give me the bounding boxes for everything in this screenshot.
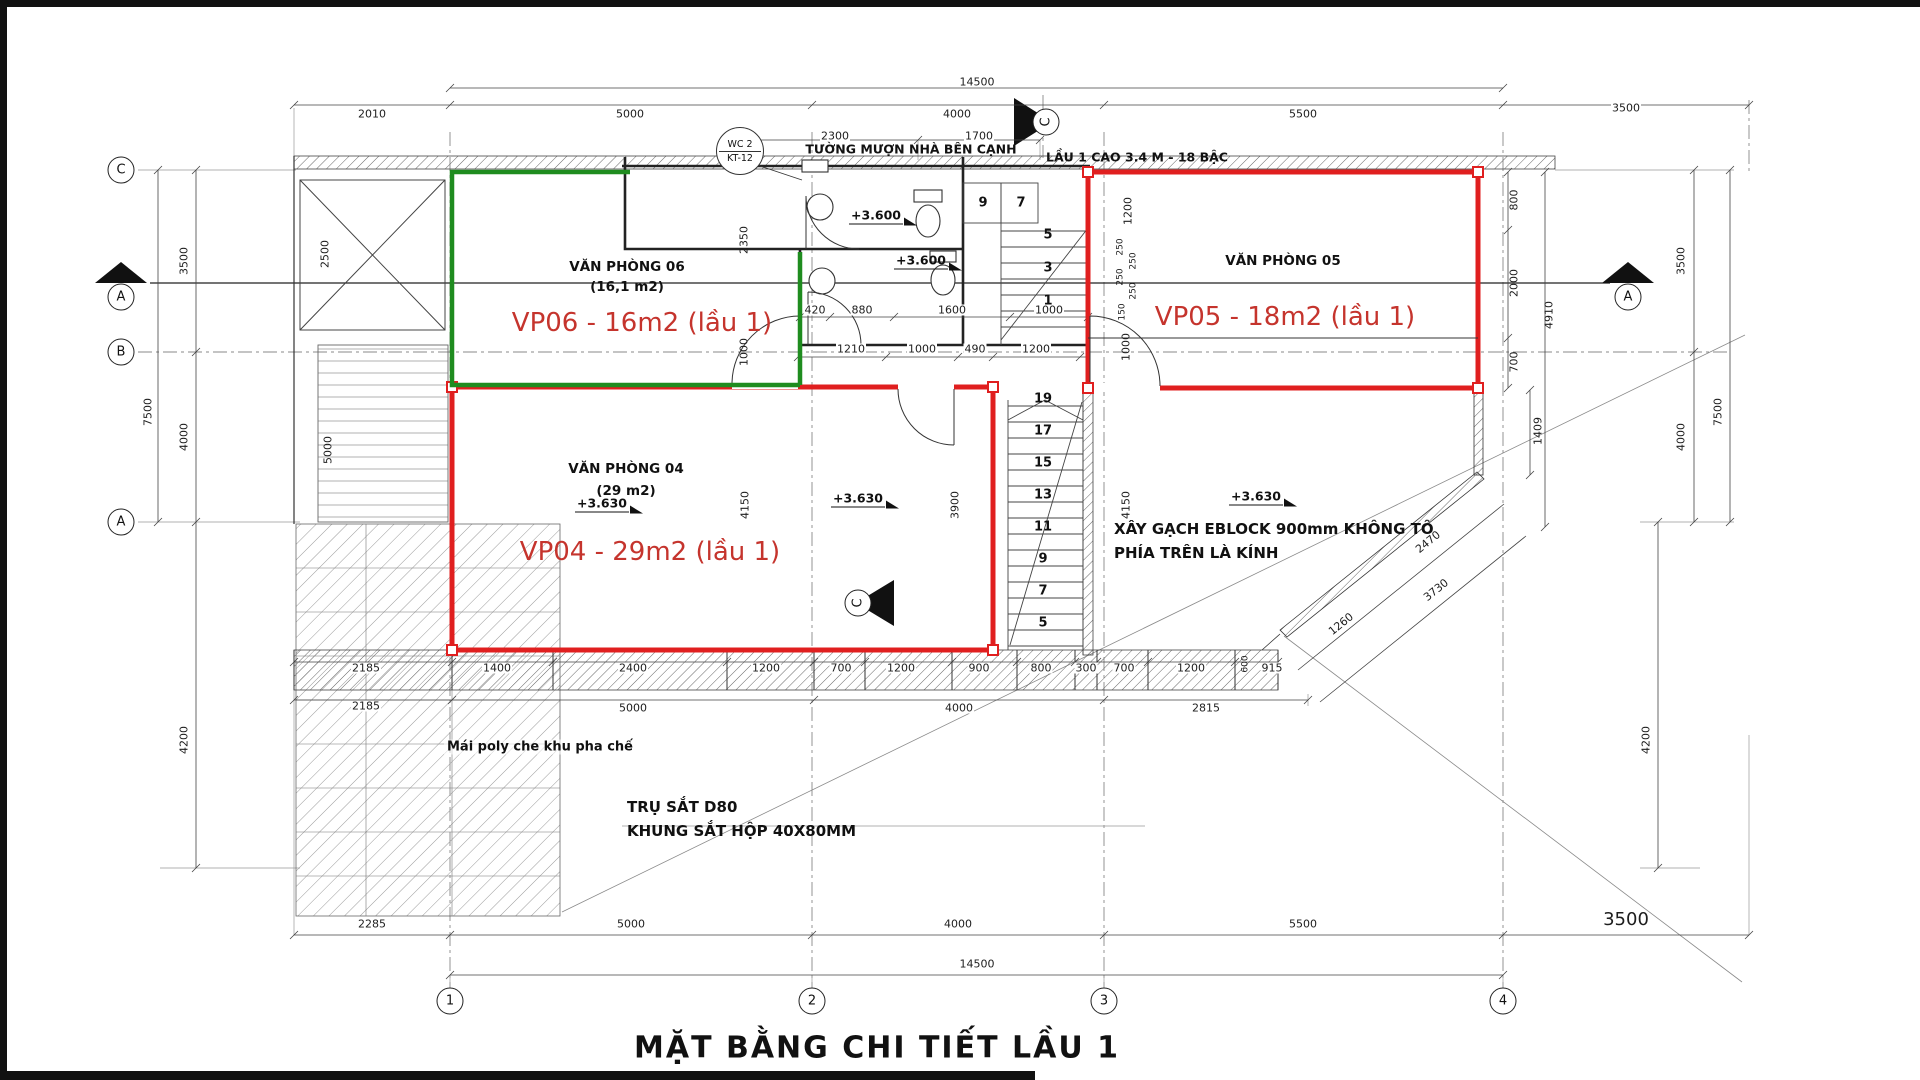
dim-label: 1600 (937, 305, 967, 316)
dim-label: 2300 (820, 131, 850, 142)
dim-label: 250 (1130, 281, 1139, 300)
dim-label: 5000 (616, 919, 646, 930)
note-poly-roof: Mái poly che khu pha chế (444, 740, 636, 755)
stair-number: 7 (1038, 584, 1047, 599)
dim-label: 4000 (1676, 422, 1687, 452)
callout-line1: WC 2 (727, 139, 752, 150)
dim-label: 4000 (179, 422, 190, 452)
dim-label: 2285 (357, 919, 387, 930)
note-eblock-1: XÂY GẠCH EBLOCK 900mm KHÔNG TÔ (1114, 520, 1434, 538)
dim-label: 3730 (1421, 576, 1451, 603)
dim-label: 1000 (1121, 332, 1132, 362)
stair-number: 7 (1016, 196, 1025, 211)
dim-label: 7500 (143, 397, 154, 427)
level-marker: +3.600 (849, 208, 903, 225)
vp06-area: (16,1 m2) (590, 279, 664, 295)
section-flag-bubble: C (845, 590, 872, 617)
dim-label: 5000 (618, 703, 648, 714)
dim-label: 3500 (1676, 246, 1687, 276)
dim-label: 2185 (351, 701, 381, 712)
dim-label: 3500 (1611, 103, 1641, 114)
dim-label: 7500 (1713, 397, 1724, 427)
dim-label: 4000 (944, 703, 974, 714)
dim-label: 4200 (1641, 725, 1652, 755)
dim-label: 1200 (1123, 196, 1134, 226)
dim-label: 1400 (482, 663, 512, 674)
dim-label: 2400 (618, 663, 648, 674)
dim-label: 2500 (320, 239, 331, 269)
vp06-name: VĂN PHÒNG 06 (569, 259, 684, 275)
stair-number: 19 (1034, 392, 1052, 407)
dim-label: 800 (1030, 663, 1053, 674)
grid-bubble-row: B (108, 339, 135, 366)
drawing-title: MẶT BẰNG CHI TIẾT LẦU 1 (634, 1031, 1120, 1066)
grid-bubble-col: 3 (1091, 988, 1118, 1015)
grid-bubble-col: 1 (437, 988, 464, 1015)
level-marker: +3.600 (894, 253, 948, 270)
dim-label: 420 (804, 305, 827, 316)
stair-number: 1 (1043, 294, 1052, 309)
note-floor-height: LẦU 1 CAO 3.4 M - 18 BẬC (1046, 150, 1228, 165)
stair-number: 5 (1038, 616, 1047, 631)
callout-divider (719, 151, 760, 152)
section-flag-bubble: C (1033, 109, 1060, 136)
dim-label: 4200 (179, 725, 190, 755)
floor-plan-sheet: MẶT BẰNG CHI TIẾT LẦU 1 VĂN PHÒNG 06 (16… (0, 0, 1920, 1080)
dim-label: 900 (968, 663, 991, 674)
section-bubble: A (108, 284, 135, 311)
dim-label: 5500 (1288, 109, 1318, 120)
dim-label: 4000 (943, 919, 973, 930)
dim-label: 1000 (907, 344, 937, 355)
note-eblock-2: PHÍA TRÊN LÀ KÍNH (1114, 544, 1278, 562)
dim-label: 700 (1509, 351, 1520, 374)
dim-label: 250 (1117, 237, 1126, 256)
stair-number: 5 (1043, 228, 1052, 243)
dim-label: 5000 (323, 435, 334, 465)
section-bubble: A (1615, 284, 1642, 311)
dim-label: 4910 (1544, 300, 1555, 330)
stair-number: 15 (1034, 456, 1052, 471)
stair-number: 9 (978, 196, 987, 211)
dim-label: 4000 (942, 109, 972, 120)
grid-bubble-row: C (108, 157, 135, 184)
dim-label: 5000 (615, 109, 645, 120)
stair-number: 11 (1034, 520, 1052, 535)
dim-label: 2000 (1509, 268, 1520, 298)
dim-label: 1409 (1533, 416, 1544, 446)
dim-label: 3900 (950, 490, 961, 520)
note-steel-frame: KHUNG SẮT HỘP 40X80MM (627, 822, 856, 840)
level-marker: +3.630 (575, 496, 629, 513)
vp06-tag: VP06 - 16m2 (lầu 1) (512, 308, 772, 338)
dim-label: 4150 (740, 490, 751, 520)
dim-label: 700 (1113, 663, 1136, 674)
dim-label: 1200 (751, 663, 781, 674)
vp04-tag: VP04 - 29m2 (lầu 1) (520, 537, 780, 567)
dim-label: 1700 (964, 131, 994, 142)
dim-label: 3500 (179, 246, 190, 276)
dim-label: 1260 (1326, 610, 1356, 637)
dim-label: 1200 (1176, 663, 1206, 674)
dim-label: 14500 (959, 77, 996, 88)
wc-detail-callout: WC 2 KT-12 (716, 127, 764, 175)
dim-label: 14500 (959, 959, 996, 970)
dim-label: 490 (964, 344, 987, 355)
stair-number: 13 (1034, 488, 1052, 503)
dim-label: 800 (1509, 189, 1520, 212)
vp05-name: VĂN PHÒNG 05 (1225, 253, 1340, 269)
dim-label: 1210 (836, 344, 866, 355)
level-marker: +3.630 (831, 491, 885, 508)
vp04-name: VĂN PHÒNG 04 (568, 461, 683, 477)
dim-label: 250 (1130, 251, 1139, 270)
dim-label: 250 (1117, 267, 1126, 286)
stair-number: 3 (1043, 261, 1052, 276)
grid-bubble-col: 2 (799, 988, 826, 1015)
callout-line2: KT-12 (727, 153, 753, 164)
grid-bubble-row: A (108, 509, 135, 536)
dim-label: 2815 (1191, 703, 1221, 714)
dim-label: 1200 (886, 663, 916, 674)
dim-label: 4150 (1121, 490, 1132, 520)
note-steel-post: TRỤ SẮT D80 (627, 798, 737, 816)
dim-label: 5500 (1288, 919, 1318, 930)
labels-layer: MẶT BẰNG CHI TIẾT LẦU 1 VĂN PHÒNG 06 (16… (0, 0, 1920, 1080)
dim-label: 1200 (1021, 344, 1051, 355)
dim-label: 2350 (739, 225, 750, 255)
stair-number: 9 (1038, 552, 1047, 567)
dim-label: 915 (1261, 663, 1284, 674)
dim-label: 150 (1119, 302, 1128, 321)
stair-number: 17 (1034, 424, 1052, 439)
dim-label: 3500 (1602, 911, 1650, 929)
dim-label: 2010 (357, 109, 387, 120)
note-borrowed-wall: TƯỜNG MƯỢN NHÀ BÊN CẠNH (805, 142, 1016, 157)
level-marker: +3.630 (1229, 489, 1283, 506)
dim-label: 600 (1242, 654, 1251, 673)
dim-label: 880 (851, 305, 874, 316)
grid-bubble-col: 4 (1490, 988, 1517, 1015)
dim-label: 300 (1075, 663, 1098, 674)
vp05-tag: VP05 - 18m2 (lầu 1) (1155, 302, 1415, 332)
dim-label: 2185 (351, 663, 381, 674)
dim-label: 700 (830, 663, 853, 674)
dim-label: 1000 (739, 337, 750, 367)
